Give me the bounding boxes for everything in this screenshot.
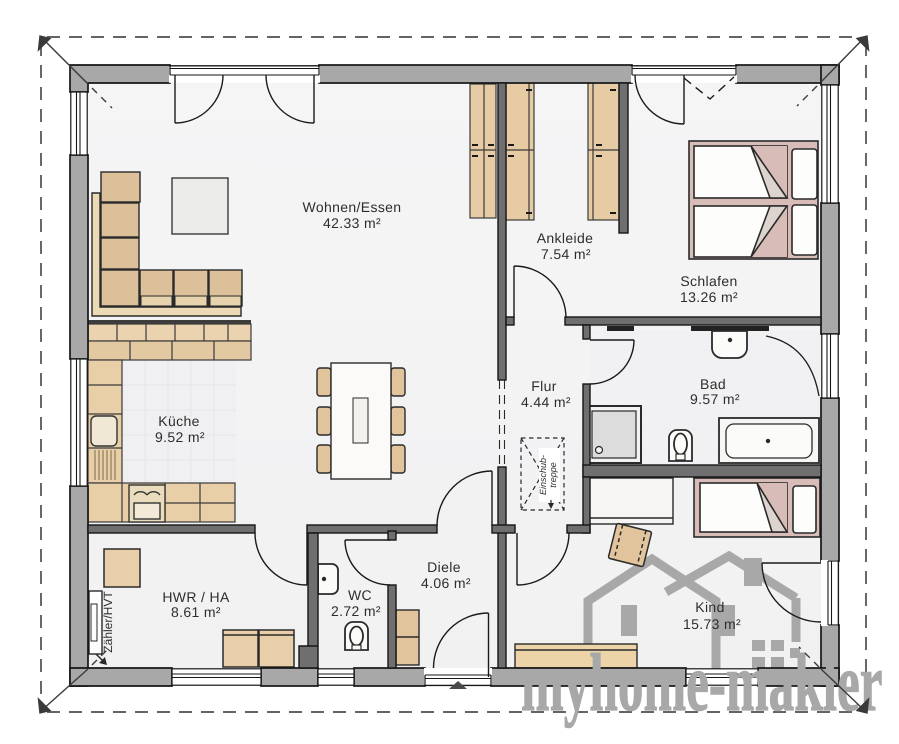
svg-text:9.57 m²: 9.57 m²	[690, 391, 740, 407]
svg-text:13.26 m²: 13.26 m²	[680, 289, 738, 305]
svg-text:4.44 m²: 4.44 m²	[521, 394, 571, 410]
svg-text:15.73 m²: 15.73 m²	[683, 616, 741, 632]
svg-text:Kind: Kind	[695, 599, 724, 615]
svg-text:Schlafen: Schlafen	[680, 273, 737, 289]
svg-text:Bad: Bad	[700, 376, 726, 392]
svg-text:Ankleide: Ankleide	[537, 230, 594, 246]
svg-text:42.33 m²: 42.33 m²	[323, 215, 381, 231]
svg-text:Einschub-: Einschub-	[538, 455, 548, 495]
svg-text:Diele: Diele	[427, 559, 461, 575]
svg-text:Küche: Küche	[158, 413, 199, 429]
svg-text:Zähler/HVT: Zähler/HVT	[101, 591, 115, 653]
svg-text:Flur: Flur	[531, 378, 557, 394]
svg-text:7.54 m²: 7.54 m²	[541, 246, 591, 262]
svg-text:9.52 m²: 9.52 m²	[155, 429, 205, 445]
svg-text:treppe: treppe	[548, 462, 558, 488]
svg-text:2.72 m²: 2.72 m²	[331, 603, 381, 619]
svg-text:WC: WC	[348, 587, 372, 603]
svg-text:myhome-makler: myhome-makler	[521, 637, 883, 728]
svg-text:Wohnen/Essen: Wohnen/Essen	[303, 199, 402, 215]
svg-text:4.06 m²: 4.06 m²	[421, 575, 471, 591]
svg-text:HWR / HA: HWR / HA	[162, 589, 230, 605]
svg-text:8.61 m²: 8.61 m²	[171, 604, 221, 620]
